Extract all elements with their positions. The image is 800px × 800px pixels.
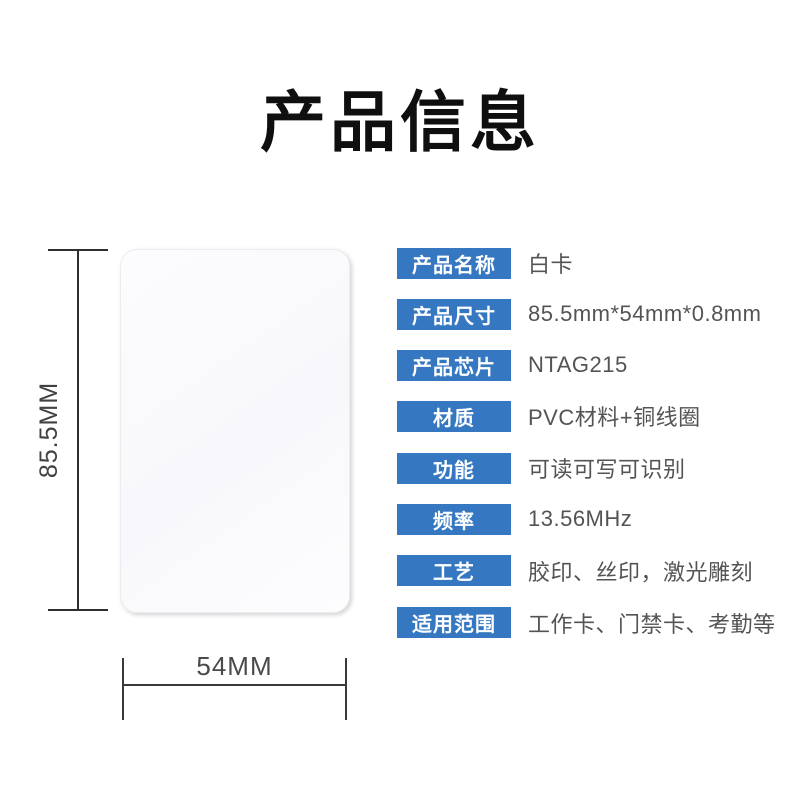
- spec-row: 工艺 胶印、丝印，激光雕刻: [397, 555, 776, 587]
- width-dimension-line: [122, 684, 347, 686]
- spec-value: NTAG215: [528, 352, 628, 378]
- spec-value: 85.5mm*54mm*0.8mm: [528, 301, 761, 327]
- width-dimension-right-cap: [345, 658, 347, 720]
- spec-label: 工艺: [397, 555, 511, 586]
- spec-row: 产品名称 白卡: [397, 247, 776, 279]
- spec-label: 适用范围: [397, 607, 511, 638]
- height-dimension-line: [77, 250, 79, 610]
- width-dimension-label: 54MM: [122, 651, 347, 682]
- spec-row: 产品尺寸 85.5mm*54mm*0.8mm: [397, 299, 776, 330]
- spec-list: 产品名称 白卡 产品尺寸 85.5mm*54mm*0.8mm 产品芯片 NTAG…: [397, 247, 776, 639]
- spec-value: 可读可写可识别: [528, 452, 686, 484]
- spec-row: 产品芯片 NTAG215: [397, 350, 776, 381]
- product-info-page: 产品信息 85.5MM 54MM 产品名称 白卡 产品尺寸 85.5mm*54m…: [0, 0, 800, 800]
- spec-label: 产品尺寸: [397, 299, 511, 330]
- spec-row: 材质 PVC材料+铜线圈: [397, 400, 776, 432]
- spec-value: 白卡: [528, 247, 573, 279]
- height-dimension-bottom-cap: [48, 609, 108, 611]
- height-dimension-label: 85.5MM: [35, 382, 64, 478]
- spec-label: 产品芯片: [397, 350, 511, 381]
- spec-value: 13.56MHz: [528, 506, 632, 532]
- spec-value: PVC材料+铜线圈: [528, 400, 701, 432]
- white-card-image: [120, 249, 350, 613]
- spec-label: 功能: [397, 453, 511, 484]
- spec-label: 频率: [397, 504, 511, 535]
- width-dimension-left-cap: [122, 658, 124, 720]
- spec-label: 材质: [397, 401, 511, 432]
- spec-row: 频率 13.56MHz: [397, 504, 776, 535]
- spec-value: 工作卡、门禁卡、考勤等: [528, 607, 776, 639]
- spec-value: 胶印、丝印，激光雕刻: [528, 555, 753, 587]
- spec-row: 适用范围 工作卡、门禁卡、考勤等: [397, 607, 776, 639]
- page-title: 产品信息: [0, 86, 800, 159]
- spec-label: 产品名称: [397, 248, 511, 279]
- spec-row: 功能 可读可写可识别: [397, 452, 776, 484]
